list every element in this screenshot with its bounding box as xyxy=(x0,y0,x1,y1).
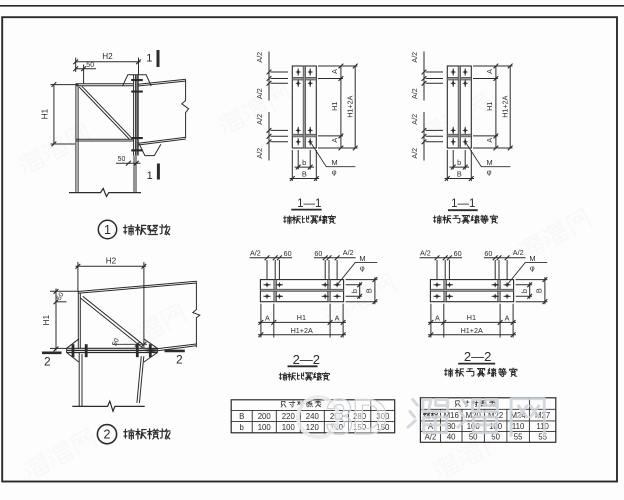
svg-text:A: A xyxy=(485,138,494,143)
svg-text:A/2: A/2 xyxy=(255,148,264,159)
svg-text:2: 2 xyxy=(104,428,111,442)
svg-text:φ: φ xyxy=(332,167,337,176)
svg-text:120: 120 xyxy=(306,423,320,432)
svg-text:A/2: A/2 xyxy=(410,148,419,159)
svg-text:240: 240 xyxy=(306,412,320,421)
svg-text:A: A xyxy=(265,314,270,323)
svg-text:A/2: A/2 xyxy=(255,114,264,125)
svg-text:1: 1 xyxy=(146,53,152,65)
svg-text:200: 200 xyxy=(258,412,272,421)
svg-text:A: A xyxy=(335,314,340,323)
svg-text:M: M xyxy=(332,158,338,167)
svg-text:100: 100 xyxy=(258,423,272,432)
svg-text:40: 40 xyxy=(447,433,456,442)
svg-text:b: b xyxy=(350,289,359,293)
svg-text:H1+2A: H1+2A xyxy=(291,326,313,335)
svg-text:220: 220 xyxy=(282,412,296,421)
svg-text:A: A xyxy=(330,69,339,74)
svg-text:B: B xyxy=(302,169,307,178)
svg-text:A/2: A/2 xyxy=(250,248,261,257)
svg-text:B: B xyxy=(365,288,374,293)
svg-text:φ: φ xyxy=(360,263,365,272)
svg-text:A/2: A/2 xyxy=(410,52,419,63)
svg-text:2: 2 xyxy=(176,353,183,367)
svg-text:H1: H1 xyxy=(42,314,51,325)
svg-text:50: 50 xyxy=(118,156,126,163)
svg-text:B: B xyxy=(239,412,244,421)
svg-text:1: 1 xyxy=(147,170,153,182)
svg-text:M: M xyxy=(359,254,365,263)
svg-text:B: B xyxy=(457,169,462,178)
svg-text:H1: H1 xyxy=(330,102,339,111)
svg-text:60: 60 xyxy=(454,249,462,258)
svg-text:H1+2A: H1+2A xyxy=(500,95,509,117)
svg-text:55: 55 xyxy=(514,433,523,442)
svg-text:b: b xyxy=(520,289,529,293)
svg-text:H1: H1 xyxy=(485,102,494,111)
svg-text:2—2: 2—2 xyxy=(293,352,320,367)
svg-text:1: 1 xyxy=(104,223,111,237)
svg-text:60: 60 xyxy=(284,249,292,258)
svg-text:b: b xyxy=(240,423,245,432)
svg-text:A/2: A/2 xyxy=(420,248,431,257)
svg-text:50: 50 xyxy=(86,62,94,69)
svg-text:60: 60 xyxy=(314,249,322,258)
svg-text:100: 100 xyxy=(282,423,296,432)
svg-text:80: 80 xyxy=(447,422,456,431)
svg-text:φ: φ xyxy=(487,167,492,176)
svg-text:A/2: A/2 xyxy=(513,248,524,257)
svg-text:2: 2 xyxy=(44,354,51,368)
svg-text:H1: H1 xyxy=(41,108,50,119)
svg-text:110: 110 xyxy=(512,422,525,431)
svg-text:A: A xyxy=(428,422,434,431)
svg-text:A/2: A/2 xyxy=(255,52,264,63)
svg-text:A: A xyxy=(330,138,339,143)
svg-text:A/2: A/2 xyxy=(410,114,419,125)
svg-text:A: A xyxy=(435,314,440,323)
svg-text:A: A xyxy=(505,314,510,323)
svg-text:H1: H1 xyxy=(297,313,306,322)
svg-text:M: M xyxy=(529,254,535,263)
svg-text:B: B xyxy=(535,288,544,293)
svg-text:2—2: 2—2 xyxy=(464,349,491,364)
svg-text:A/2: A/2 xyxy=(343,248,354,257)
svg-text:1—1: 1—1 xyxy=(297,198,321,210)
svg-text:3D: 3D xyxy=(326,389,387,445)
svg-text:M: M xyxy=(487,158,493,167)
svg-text:A: A xyxy=(485,69,494,74)
svg-text:H1: H1 xyxy=(467,313,476,322)
svg-text:A/2: A/2 xyxy=(410,88,419,99)
svg-text:60: 60 xyxy=(484,249,492,258)
svg-text:H1+2A: H1+2A xyxy=(461,326,483,335)
svg-text:b: b xyxy=(457,158,461,167)
svg-text:1—1: 1—1 xyxy=(451,198,475,210)
svg-text:φ: φ xyxy=(530,263,535,272)
svg-text:A/2: A/2 xyxy=(255,88,264,99)
svg-text:b: b xyxy=(302,158,306,167)
svg-text:H2: H2 xyxy=(102,52,113,61)
svg-text:H2: H2 xyxy=(106,257,117,266)
svg-text:H1+2A: H1+2A xyxy=(345,95,354,117)
